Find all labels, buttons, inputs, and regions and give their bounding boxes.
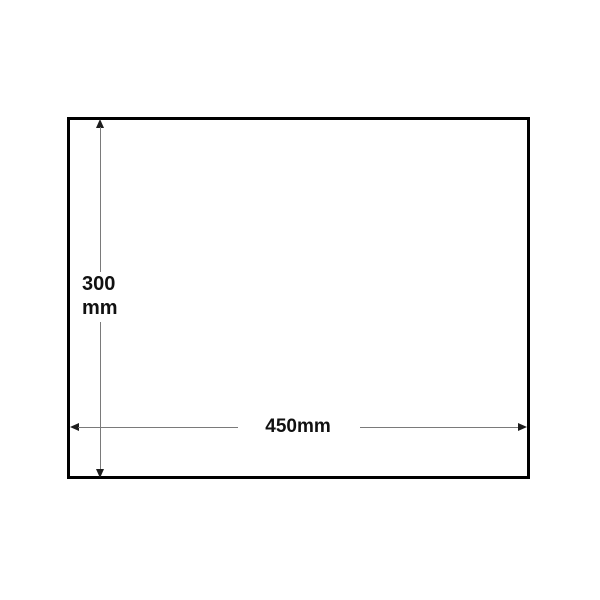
width-dimension-label: 450mm [238,416,358,438]
height-value: 300 [82,272,122,296]
width-dimension-line-left [78,427,238,428]
height-dimension-label: 300 mm [82,272,122,320]
arrow-right-icon [518,423,527,431]
height-unit: mm [82,296,122,320]
dimension-diagram: 300 mm 450mm [0,0,600,600]
width-dimension-line-right [360,427,520,428]
arrow-down-icon [96,469,104,478]
height-dimension-line-upper [100,127,101,272]
height-dimension-line-lower [100,322,101,470]
